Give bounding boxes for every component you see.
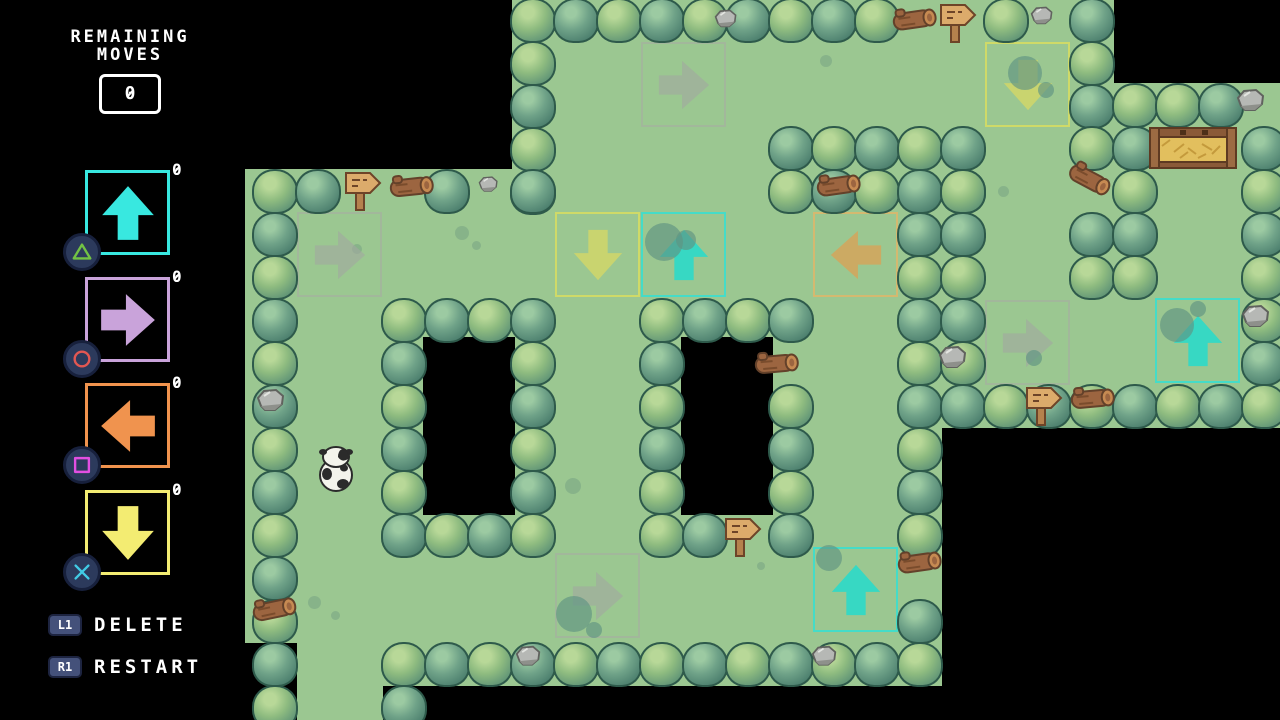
bush	[381, 341, 427, 386]
cow-sprite	[314, 444, 358, 498]
bush	[510, 298, 556, 343]
r1-button-icon: R1	[48, 656, 82, 678]
remaining-moves-line2: MOVES	[30, 46, 230, 64]
bush	[510, 427, 556, 472]
grass-spot	[308, 596, 321, 609]
bush	[252, 255, 298, 300]
bush	[940, 384, 986, 429]
bush	[768, 513, 814, 558]
rock	[811, 644, 838, 671]
bush	[983, 384, 1029, 429]
ps-cross-icon	[63, 553, 101, 591]
ps-square-icon	[63, 446, 101, 484]
bush	[811, 0, 857, 43]
bush	[854, 642, 900, 687]
bush	[553, 642, 599, 687]
bush	[1112, 384, 1158, 429]
bush	[1155, 83, 1201, 128]
bush	[510, 41, 556, 86]
bush	[1069, 212, 1115, 257]
bush	[1069, 41, 1115, 86]
grass-area	[297, 642, 383, 720]
bush	[811, 126, 857, 171]
restart-action[interactable]: R1 RESTART	[48, 656, 202, 678]
bush	[510, 470, 556, 515]
bush	[1241, 384, 1280, 429]
bush	[768, 470, 814, 515]
delete-action[interactable]: L1 DELETE	[48, 614, 187, 636]
bush	[553, 0, 599, 43]
bush	[639, 0, 685, 43]
bush	[897, 470, 943, 515]
bush	[424, 513, 470, 558]
bush	[252, 685, 298, 720]
bush	[381, 513, 427, 558]
grass-spot	[757, 562, 765, 570]
bush	[854, 126, 900, 171]
signpost	[938, 2, 978, 48]
bush	[682, 642, 728, 687]
rock	[938, 344, 968, 374]
ps-circle-icon	[63, 340, 101, 378]
bush	[381, 427, 427, 472]
bush	[768, 298, 814, 343]
bush	[639, 341, 685, 386]
log	[1063, 383, 1118, 419]
game-map	[0, 0, 1280, 720]
bush	[1241, 212, 1280, 257]
bush-patch	[816, 545, 842, 571]
rock	[256, 387, 286, 417]
bush	[381, 685, 427, 720]
grass-spot	[820, 55, 832, 67]
bush	[983, 0, 1029, 43]
bush	[1069, 0, 1115, 43]
bush-patch	[1190, 301, 1206, 317]
bush	[295, 169, 341, 214]
bush	[252, 341, 298, 386]
rock	[478, 175, 499, 197]
hay-gate	[1148, 124, 1238, 176]
bush-patch	[1038, 82, 1054, 98]
bush	[467, 642, 513, 687]
bush	[381, 470, 427, 515]
remaining-moves-value: 0	[125, 85, 136, 103]
placed-arrow-down	[555, 212, 640, 297]
bush	[1241, 255, 1280, 300]
bush	[768, 126, 814, 171]
bush	[940, 169, 986, 214]
bush	[639, 513, 685, 558]
pit	[423, 337, 515, 515]
bush	[510, 127, 556, 172]
bush	[639, 470, 685, 515]
bush	[467, 513, 513, 558]
bush	[768, 384, 814, 429]
bush	[252, 470, 298, 515]
bush	[940, 298, 986, 343]
bush	[1155, 384, 1201, 429]
bush	[897, 341, 943, 386]
bush	[1112, 83, 1158, 128]
bush-patch	[1026, 350, 1042, 366]
signpost	[343, 170, 383, 216]
grass-spot	[565, 478, 581, 494]
bush	[639, 427, 685, 472]
bush	[596, 642, 642, 687]
bush	[897, 126, 943, 171]
bush	[940, 255, 986, 300]
bush	[1069, 255, 1115, 300]
bush	[1069, 84, 1115, 129]
bush	[897, 298, 943, 343]
rock	[1236, 87, 1266, 117]
bush	[768, 0, 814, 43]
rock	[714, 8, 738, 33]
rock	[1241, 303, 1271, 333]
bush	[682, 298, 728, 343]
bush	[510, 513, 556, 558]
ghost-arrow-right	[641, 42, 726, 127]
bush	[940, 212, 986, 257]
bush	[768, 427, 814, 472]
log	[381, 170, 436, 207]
bush	[381, 642, 427, 687]
bush	[897, 599, 943, 644]
bush	[1241, 341, 1280, 386]
bush	[424, 642, 470, 687]
bush	[381, 384, 427, 429]
grass-spot	[998, 186, 1009, 197]
grass-spot	[455, 226, 469, 240]
bush-patch	[586, 622, 602, 638]
remaining-moves-counter: 0	[99, 74, 161, 114]
log	[747, 348, 802, 384]
bush	[467, 298, 513, 343]
right-moves-count: 0	[172, 269, 182, 285]
ps-triangle-icon	[63, 233, 101, 271]
bush	[897, 427, 943, 472]
bush	[682, 513, 728, 558]
bush-patch	[1008, 56, 1042, 90]
bush	[897, 169, 943, 214]
grass-spot	[472, 241, 481, 250]
signpost	[723, 516, 763, 562]
bush	[252, 212, 298, 257]
bush	[639, 384, 685, 429]
rock	[1030, 5, 1054, 30]
bush	[510, 341, 556, 386]
bush	[725, 642, 771, 687]
bush	[897, 384, 943, 429]
l1-button-icon: L1	[48, 614, 82, 636]
left-moves-count: 0	[172, 375, 182, 391]
grass-spot	[331, 611, 340, 620]
up-moves-count: 0	[172, 162, 182, 178]
bush	[897, 255, 943, 300]
bush	[897, 642, 943, 687]
bush	[768, 642, 814, 687]
bush	[252, 513, 298, 558]
bush	[897, 212, 943, 257]
bush	[510, 169, 556, 214]
bush	[381, 298, 427, 343]
bush	[252, 427, 298, 472]
bush-patch	[1160, 308, 1194, 342]
bush	[424, 298, 470, 343]
bush	[510, 84, 556, 129]
placed-arrow-left	[813, 212, 898, 297]
remaining-moves-label: REMAINING MOVES	[30, 28, 230, 64]
delete-label: DELETE	[94, 614, 187, 636]
bush	[252, 642, 298, 687]
bush	[252, 169, 298, 214]
bush	[639, 298, 685, 343]
bush	[1112, 255, 1158, 300]
bush	[596, 0, 642, 43]
rock	[515, 644, 542, 671]
ghost-arrow-right	[985, 300, 1070, 385]
remaining-moves-line1: REMAINING	[30, 28, 230, 46]
bush	[1241, 169, 1280, 214]
bush	[725, 298, 771, 343]
bush	[510, 384, 556, 429]
ghost-arrow-right	[297, 212, 382, 297]
bush	[940, 126, 986, 171]
bush	[252, 298, 298, 343]
down-moves-count: 0	[172, 482, 182, 498]
bush	[1112, 212, 1158, 257]
bush	[639, 642, 685, 687]
bush	[510, 0, 556, 43]
bush-patch	[676, 230, 696, 250]
bush	[1241, 126, 1280, 171]
bush	[1198, 384, 1244, 429]
restart-label: RESTART	[94, 656, 202, 678]
game-screen: REMAINING MOVES 0 0 0 0 0 L1 DELETE R1 R…	[0, 0, 1280, 720]
signpost	[1024, 385, 1064, 431]
